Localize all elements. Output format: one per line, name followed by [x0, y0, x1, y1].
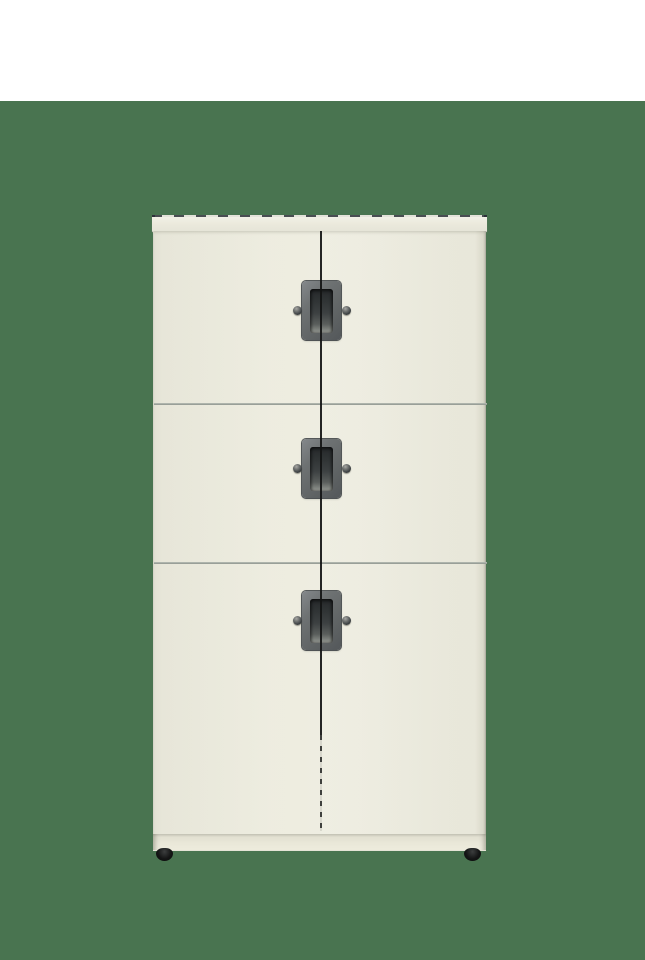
top-back-edge-line	[152, 215, 487, 217]
cabinet-body	[153, 231, 486, 834]
foot-left	[156, 848, 173, 861]
cam-lock-icon	[293, 306, 302, 315]
plinth	[153, 834, 486, 851]
cam-lock-icon	[342, 464, 351, 473]
cam-lock-icon	[342, 616, 351, 625]
cam-lock-icon	[293, 464, 302, 473]
locker-cabinet	[152, 215, 487, 861]
cam-lock-icon	[342, 306, 351, 315]
foot-right	[464, 848, 481, 861]
door-bottom-left	[154, 547, 320, 834]
door-gap-line-faded	[320, 735, 322, 831]
door-bottom-right	[320, 547, 486, 834]
cabinet-top-panel	[152, 215, 487, 232]
door-gap-line	[320, 231, 322, 735]
cam-lock-icon	[293, 616, 302, 625]
background-top-band	[0, 0, 645, 101]
